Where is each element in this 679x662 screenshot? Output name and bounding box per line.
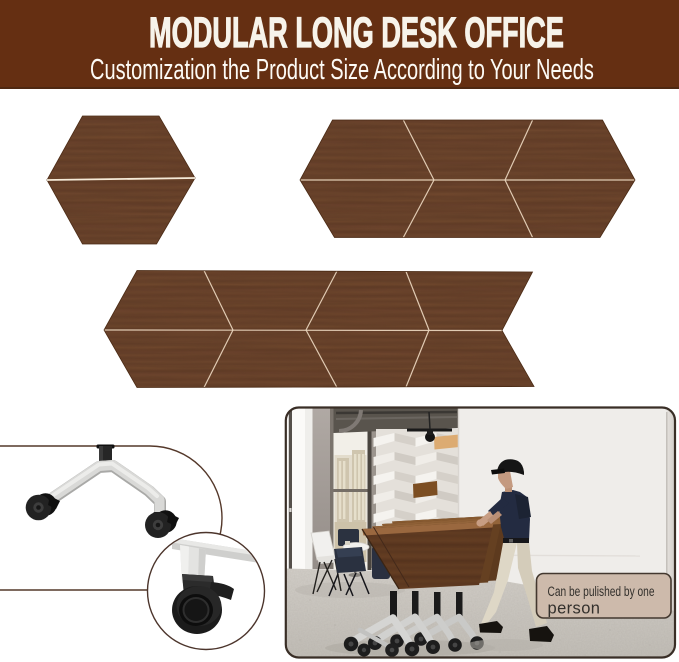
- svg-text:Can be pulished by one: Can be pulished by one: [548, 584, 655, 599]
- svg-text:person: person: [548, 600, 601, 618]
